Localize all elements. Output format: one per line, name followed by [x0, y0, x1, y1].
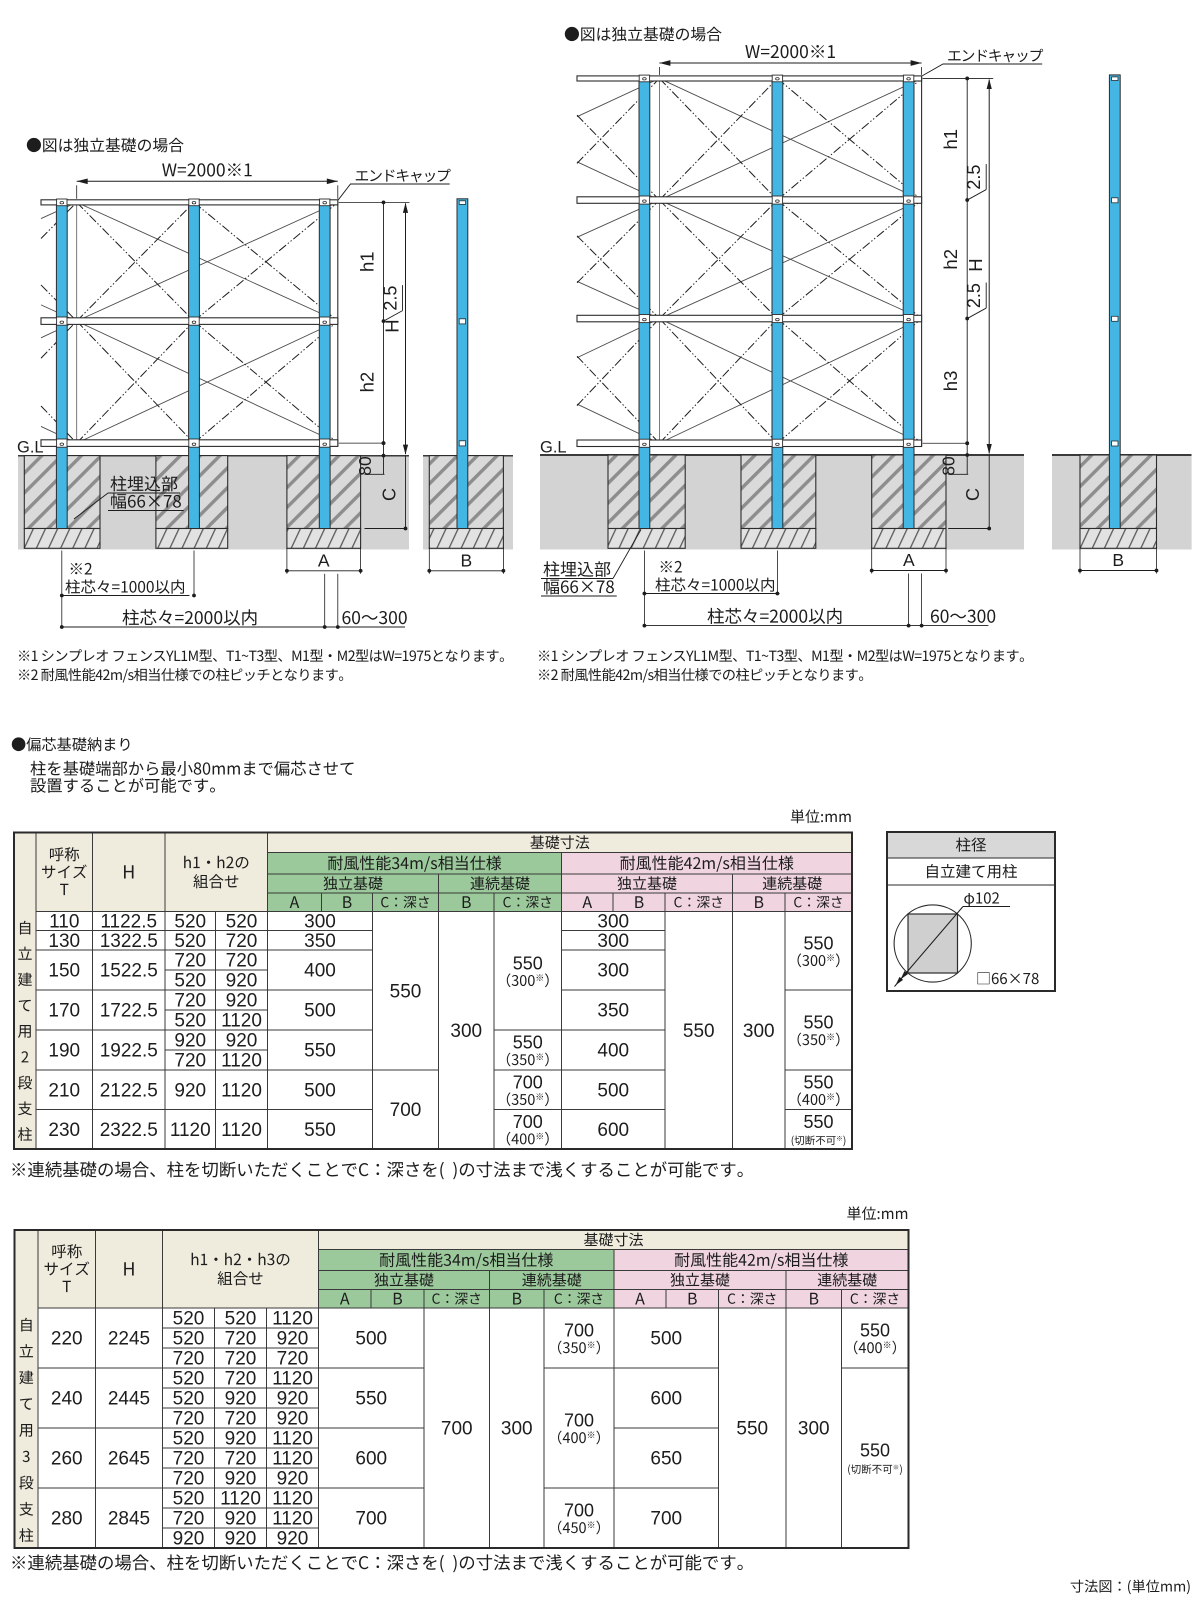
svg-text:550: 550 — [860, 1321, 890, 1341]
svg-text:920: 920 — [174, 1031, 206, 1052]
svg-text:110: 110 — [49, 912, 79, 933]
svg-text:350: 350 — [597, 1001, 629, 1022]
svg-text:520: 520 — [173, 1489, 205, 1510]
svg-text:920: 920 — [225, 1509, 257, 1530]
svg-text:C: C — [963, 488, 983, 501]
svg-text:700: 700 — [564, 1501, 594, 1521]
svg-text:600: 600 — [597, 1120, 629, 1141]
svg-text:520: 520 — [225, 1309, 257, 1330]
svg-text:260: 260 — [51, 1449, 83, 1470]
svg-text:1120: 1120 — [170, 1120, 211, 1141]
svg-text:500: 500 — [304, 1001, 336, 1022]
svg-text:400: 400 — [597, 1041, 629, 1062]
svg-text:920: 920 — [225, 1429, 257, 1450]
svg-text:1120: 1120 — [272, 1509, 313, 1530]
svg-text:1120: 1120 — [272, 1489, 313, 1510]
svg-text:240: 240 — [51, 1389, 83, 1410]
svg-text:720: 720 — [225, 1349, 257, 1370]
svg-text:300: 300 — [597, 961, 629, 982]
svg-text:G.L: G.L — [17, 439, 44, 457]
svg-text:520: 520 — [173, 1369, 205, 1390]
svg-text:550: 550 — [513, 953, 543, 973]
svg-text:720: 720 — [173, 1349, 205, 1370]
svg-text:700: 700 — [513, 1112, 543, 1132]
svg-text:2845: 2845 — [108, 1509, 150, 1530]
svg-text:1120: 1120 — [220, 1489, 261, 1510]
svg-text:2122.5: 2122.5 — [100, 1080, 158, 1101]
svg-text:520: 520 — [226, 912, 258, 933]
svg-text:1120: 1120 — [221, 1080, 262, 1101]
svg-text:280: 280 — [51, 1509, 83, 1530]
svg-text:520: 520 — [174, 971, 206, 992]
svg-text:720: 720 — [225, 1409, 257, 1430]
svg-text:150: 150 — [48, 961, 80, 982]
svg-text:600: 600 — [355, 1449, 387, 1470]
svg-text:h2: h2 — [357, 372, 378, 393]
svg-text:600: 600 — [650, 1389, 682, 1410]
svg-text:720: 720 — [226, 951, 258, 972]
svg-text:550: 550 — [683, 1021, 715, 1042]
svg-text:210: 210 — [48, 1080, 80, 1101]
svg-text:400: 400 — [304, 961, 336, 982]
svg-text:B: B — [461, 550, 473, 570]
svg-text:550: 550 — [803, 933, 833, 953]
svg-text:550: 550 — [304, 1120, 336, 1141]
svg-text:80: 80 — [939, 456, 959, 476]
svg-text:700: 700 — [513, 1072, 543, 1092]
svg-text:2.5: 2.5 — [964, 283, 984, 308]
svg-text:550: 550 — [860, 1441, 890, 1461]
svg-text:920: 920 — [226, 991, 258, 1012]
svg-text:2445: 2445 — [108, 1389, 150, 1410]
svg-text:350: 350 — [304, 931, 336, 952]
svg-text:2245: 2245 — [108, 1329, 150, 1350]
svg-text:1922.5: 1922.5 — [100, 1041, 158, 1062]
svg-text:520: 520 — [174, 1011, 206, 1032]
svg-text:A: A — [903, 550, 915, 570]
svg-text:520: 520 — [173, 1389, 205, 1410]
svg-text:1722.5: 1722.5 — [100, 1001, 158, 1022]
svg-text:1122.5: 1122.5 — [100, 912, 157, 933]
svg-text:300: 300 — [597, 912, 629, 933]
svg-text:190: 190 — [48, 1041, 80, 1062]
svg-text:1522.5: 1522.5 — [100, 961, 158, 982]
svg-text:300: 300 — [597, 931, 629, 952]
svg-text:1120: 1120 — [272, 1429, 313, 1450]
svg-text:720: 720 — [225, 1329, 257, 1350]
svg-text:920: 920 — [277, 1469, 309, 1490]
svg-text:720: 720 — [226, 931, 258, 952]
svg-text:650: 650 — [650, 1449, 682, 1470]
svg-text:H: H — [382, 319, 403, 332]
svg-text:720: 720 — [173, 1509, 205, 1530]
svg-text:920: 920 — [225, 1469, 257, 1490]
svg-text:720: 720 — [277, 1349, 309, 1370]
svg-text:300: 300 — [501, 1419, 533, 1440]
svg-text:500: 500 — [597, 1080, 629, 1101]
svg-text:h3: h3 — [940, 371, 961, 392]
svg-text:220: 220 — [51, 1329, 83, 1350]
svg-text:520: 520 — [174, 931, 206, 952]
svg-text:920: 920 — [277, 1409, 309, 1430]
svg-text:700: 700 — [650, 1509, 682, 1530]
svg-text:G.L: G.L — [540, 439, 567, 457]
svg-text:500: 500 — [650, 1329, 682, 1350]
svg-text:300: 300 — [450, 1021, 482, 1042]
svg-text:920: 920 — [277, 1329, 309, 1350]
svg-text:720: 720 — [174, 951, 206, 972]
svg-text:h2: h2 — [940, 249, 961, 270]
svg-text:920: 920 — [225, 1529, 257, 1550]
svg-text:2645: 2645 — [108, 1449, 150, 1470]
svg-text:h1: h1 — [357, 251, 378, 272]
svg-text:550: 550 — [803, 1072, 833, 1092]
svg-text:h1: h1 — [940, 129, 961, 150]
svg-text:300: 300 — [798, 1419, 830, 1440]
svg-text:500: 500 — [355, 1329, 387, 1350]
svg-text:520: 520 — [173, 1429, 205, 1450]
svg-text:920: 920 — [174, 1080, 206, 1101]
svg-text:920: 920 — [277, 1389, 309, 1410]
svg-text:130: 130 — [48, 931, 80, 952]
svg-text:230: 230 — [48, 1120, 80, 1141]
svg-text:1322.5: 1322.5 — [100, 931, 158, 952]
svg-text:720: 720 — [174, 1051, 206, 1072]
svg-text:1120: 1120 — [272, 1449, 313, 1470]
svg-text:1120: 1120 — [272, 1309, 313, 1330]
svg-text:720: 720 — [173, 1469, 205, 1490]
svg-text:1120: 1120 — [221, 1011, 262, 1032]
svg-text:550: 550 — [803, 1112, 833, 1132]
svg-text:300: 300 — [743, 1021, 775, 1042]
svg-text:2322.5: 2322.5 — [100, 1120, 158, 1141]
svg-text:720: 720 — [173, 1449, 205, 1470]
svg-text:H: H — [965, 258, 986, 271]
svg-text:520: 520 — [173, 1309, 205, 1330]
svg-text:920: 920 — [226, 1031, 258, 1052]
svg-text:920: 920 — [277, 1529, 309, 1550]
svg-text:1120: 1120 — [221, 1051, 262, 1072]
svg-text:500: 500 — [304, 1080, 336, 1101]
svg-text:700: 700 — [441, 1419, 473, 1440]
svg-text:700: 700 — [564, 1321, 594, 1341]
svg-text:550: 550 — [390, 981, 422, 1002]
svg-text:170: 170 — [48, 1001, 80, 1022]
svg-text:2.5: 2.5 — [381, 286, 401, 311]
svg-text:2.5: 2.5 — [964, 165, 984, 190]
svg-text:720: 720 — [173, 1409, 205, 1430]
svg-text:300: 300 — [304, 912, 336, 933]
svg-text:700: 700 — [355, 1509, 387, 1530]
svg-text:700: 700 — [390, 1100, 422, 1121]
svg-text:520: 520 — [173, 1329, 205, 1350]
svg-text:550: 550 — [355, 1389, 387, 1410]
svg-text:B: B — [1112, 550, 1124, 570]
svg-text:550: 550 — [513, 1033, 543, 1053]
svg-text:920: 920 — [173, 1529, 205, 1550]
svg-text:920: 920 — [226, 971, 258, 992]
svg-text:700: 700 — [564, 1411, 594, 1431]
svg-text:720: 720 — [225, 1449, 257, 1470]
svg-text:C: C — [380, 488, 400, 501]
svg-text:550: 550 — [803, 1013, 833, 1033]
svg-text:720: 720 — [225, 1369, 257, 1390]
svg-text:1120: 1120 — [272, 1369, 313, 1390]
svg-text:720: 720 — [174, 991, 206, 1012]
svg-text:A: A — [318, 550, 330, 570]
svg-text:1120: 1120 — [221, 1120, 262, 1141]
svg-text:550: 550 — [736, 1419, 768, 1440]
svg-text:520: 520 — [174, 912, 206, 933]
svg-text:80: 80 — [355, 456, 375, 476]
svg-text:920: 920 — [225, 1389, 257, 1410]
svg-text:550: 550 — [304, 1041, 336, 1062]
